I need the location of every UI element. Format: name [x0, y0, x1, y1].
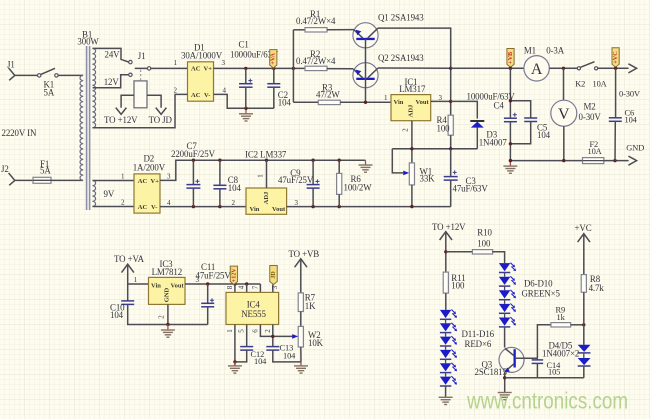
svg-text:47uF/63V: 47uF/63V — [453, 183, 489, 193]
svg-text:9V: 9V — [104, 189, 115, 199]
svg-text:LM7812: LM7812 — [152, 267, 182, 277]
svg-text:100: 100 — [437, 124, 451, 134]
svg-text:Vout: Vout — [272, 206, 286, 213]
svg-text:2: 2 — [158, 315, 166, 319]
svg-text:1N4007: 1N4007 — [479, 137, 508, 147]
svg-text:3: 3 — [222, 59, 226, 67]
svg-text:3: 3 — [295, 199, 299, 207]
svg-text:2200uF/25V: 2200uF/25V — [171, 149, 216, 159]
svg-text:10A: 10A — [593, 80, 607, 89]
svg-text:ADJ: ADJ — [263, 191, 270, 204]
svg-text:10K: 10K — [308, 338, 324, 348]
svg-text:V-: V- — [204, 92, 210, 99]
svg-text:C1: C1 — [239, 40, 249, 50]
svg-text:4: 4 — [223, 87, 227, 95]
svg-text:4: 4 — [238, 285, 246, 289]
svg-text:TO +VA: TO +VA — [114, 254, 145, 264]
svg-text:+VC: +VC — [575, 223, 592, 233]
svg-text:GND: GND — [164, 287, 171, 302]
svg-text:4.7k: 4.7k — [589, 283, 605, 293]
svg-text:10A: 10A — [588, 147, 602, 156]
svg-text:+12V: +12V — [230, 268, 237, 283]
svg-text:V+: V+ — [151, 178, 160, 185]
svg-text:C4: C4 — [494, 100, 505, 110]
svg-text:5A: 5A — [40, 166, 51, 176]
svg-text:300W: 300W — [77, 37, 99, 47]
svg-text:0.47/2W×4: 0.47/2W×4 — [296, 56, 336, 66]
svg-text:TO +12V: TO +12V — [432, 222, 466, 232]
svg-text:+VB: +VB — [507, 52, 514, 64]
svg-text:J2: J2 — [1, 164, 9, 174]
svg-text:104: 104 — [278, 98, 292, 108]
svg-text:104: 104 — [283, 352, 296, 361]
svg-text:AC: AC — [191, 92, 201, 99]
svg-text:Q2 2SA1943: Q2 2SA1943 — [378, 53, 424, 63]
svg-text:V-: V- — [151, 204, 157, 211]
svg-text:TO +12V: TO +12V — [104, 115, 138, 125]
svg-text:A: A — [531, 61, 543, 78]
svg-text:10000uF/63V: 10000uF/63V — [467, 91, 516, 101]
svg-text:Vout: Vout — [416, 99, 430, 106]
svg-text:D11-D16: D11-D16 — [462, 329, 495, 339]
svg-text:2: 2 — [402, 128, 410, 132]
svg-text:AC: AC — [191, 66, 201, 73]
svg-text:104: 104 — [625, 115, 638, 124]
svg-text:1: 1 — [174, 59, 178, 67]
svg-text:3: 3 — [271, 285, 279, 289]
svg-text:J1: J1 — [138, 51, 146, 61]
svg-text:104: 104 — [228, 183, 242, 193]
svg-text:V+: V+ — [204, 66, 213, 73]
svg-text:1A/200V: 1A/200V — [133, 162, 166, 172]
svg-text:1: 1 — [121, 173, 125, 181]
svg-text:AC: AC — [138, 204, 148, 211]
svg-text:J1: J1 — [7, 60, 15, 70]
svg-text:6: 6 — [251, 329, 259, 333]
svg-text:Vin: Vin — [250, 206, 260, 213]
svg-text:+VA: +VA — [270, 52, 277, 64]
svg-text:5: 5 — [238, 329, 246, 333]
svg-text:LM317: LM317 — [399, 84, 426, 94]
svg-text:0-30V: 0-30V — [579, 112, 602, 122]
svg-text:R10: R10 — [477, 228, 492, 238]
svg-text:GREEN×5: GREEN×5 — [522, 288, 561, 298]
svg-text:2: 2 — [174, 87, 178, 95]
svg-text:1: 1 — [384, 94, 388, 102]
svg-text:5A: 5A — [44, 88, 55, 98]
svg-text:TO JD: TO JD — [149, 115, 173, 125]
svg-text:Q1 2SA1943: Q1 2SA1943 — [378, 13, 424, 23]
svg-text:1: 1 — [134, 276, 138, 284]
svg-text:TO +VB: TO +VB — [289, 249, 320, 259]
svg-text:0.47/2W×4: 0.47/2W×4 — [296, 16, 336, 26]
svg-text:33K: 33K — [420, 173, 436, 183]
svg-text:1N4007×2: 1N4007×2 — [542, 348, 579, 358]
svg-text:NE555: NE555 — [241, 309, 266, 319]
svg-text:2220V IN: 2220V IN — [2, 128, 37, 138]
svg-text:2SC1815: 2SC1815 — [475, 367, 508, 377]
svg-text:104: 104 — [537, 130, 551, 140]
svg-text:M2: M2 — [584, 102, 596, 112]
svg-text:47uF/25V: 47uF/25V — [196, 270, 232, 280]
svg-text:Vin: Vin — [394, 99, 404, 106]
svg-text:1: 1 — [257, 174, 265, 178]
svg-text:12V: 12V — [104, 77, 120, 87]
svg-text:100: 100 — [477, 239, 491, 249]
svg-text:AC: AC — [138, 178, 148, 185]
svg-text:V: V — [558, 106, 570, 123]
svg-text:24V: 24V — [105, 50, 121, 60]
svg-text:K2: K2 — [575, 80, 585, 89]
svg-text:www.cntronics.com: www.cntronics.com — [466, 388, 628, 414]
svg-text:104: 104 — [110, 310, 124, 320]
svg-text:IC2 LM337: IC2 LM337 — [245, 150, 287, 160]
svg-text:Vout: Vout — [171, 283, 185, 290]
svg-text:JD: JD — [270, 271, 277, 279]
svg-text:1K: 1K — [305, 301, 316, 311]
svg-text:1: 1 — [226, 329, 234, 333]
svg-text:47/2W: 47/2W — [316, 90, 340, 100]
svg-text:Vin: Vin — [151, 283, 161, 290]
svg-text:0-30V: 0-30V — [619, 90, 640, 99]
svg-text:4: 4 — [167, 199, 171, 207]
svg-text:1k: 1k — [557, 313, 566, 322]
svg-text:2: 2 — [264, 329, 272, 333]
svg-text:+VC: +VC — [612, 51, 619, 63]
svg-text:0-3A: 0-3A — [546, 45, 565, 55]
svg-text:8: 8 — [226, 285, 234, 289]
svg-text:GND: GND — [626, 144, 644, 153]
svg-text:2: 2 — [121, 199, 125, 207]
svg-text:3: 3 — [167, 172, 171, 180]
svg-text:100: 100 — [451, 281, 465, 291]
svg-text:2: 2 — [232, 199, 236, 207]
svg-text:RED×6: RED×6 — [465, 339, 492, 349]
svg-text:30A/1000V: 30A/1000V — [181, 50, 223, 60]
svg-text:100/2W: 100/2W — [344, 183, 373, 193]
svg-text:105: 105 — [548, 367, 560, 376]
svg-text:D6-D10: D6-D10 — [524, 278, 553, 288]
svg-text:104: 104 — [254, 357, 267, 366]
svg-text:M1: M1 — [524, 45, 536, 55]
svg-text:47uF/25V: 47uF/25V — [278, 175, 314, 185]
svg-text:ADJ: ADJ — [408, 104, 415, 117]
svg-text:7: 7 — [251, 285, 259, 289]
